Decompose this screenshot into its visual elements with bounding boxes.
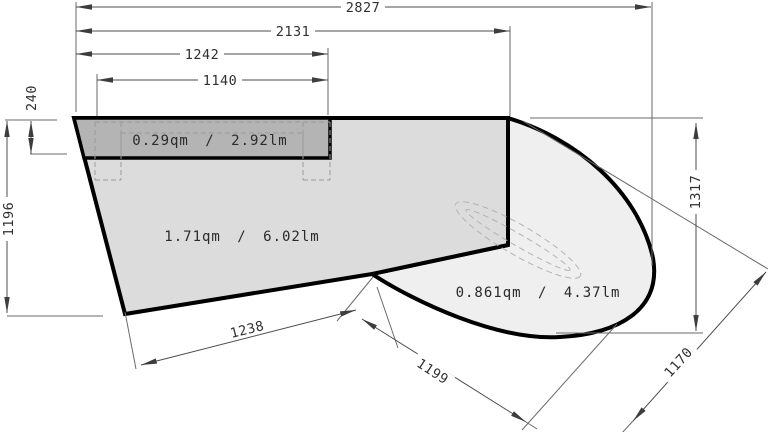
strip-area-label: 0.29qm / 2.92lm: [132, 133, 287, 149]
dim-1196-label: 1196: [1, 202, 17, 237]
technical-drawing: 2827 2131 1242 1140 240 1196 1317 1238: [0, 0, 768, 432]
dim-1140-label: 1140: [203, 73, 238, 89]
main-area-label: 1.71qm / 6.02lm: [164, 229, 319, 245]
dim-1242-label: 1242: [185, 47, 220, 63]
dim-2827-label: 2827: [346, 0, 381, 16]
dim-1317-label: 1317: [688, 175, 704, 210]
dim-240-label: 240: [24, 85, 40, 111]
cad-drawing-canvas: 2827 2131 1242 1140 240 1196 1317 1238: [0, 0, 768, 432]
dim-1199-label: 1199: [414, 356, 452, 388]
dim-2131-label: 2131: [276, 24, 311, 40]
curved-area-label: 0.861qm / 4.37lm: [456, 285, 621, 301]
